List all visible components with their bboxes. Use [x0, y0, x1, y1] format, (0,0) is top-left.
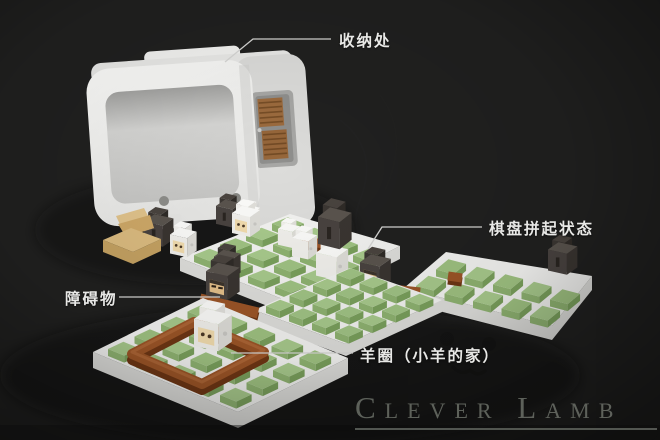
label-board-state: 棋盘拼起状态	[489, 217, 594, 239]
label-sheep-pen: 羊圈（小羊的家）	[360, 344, 500, 366]
label-storage: 收纳处	[339, 29, 392, 51]
product-diagram: 收纳处 棋盘拼起状态 障碍物 羊圈（小羊的家） Clever Lamb	[0, 0, 660, 440]
watermark-text: Clever Lamb	[355, 392, 657, 430]
box-opening	[105, 84, 241, 205]
label-obstacle: 障碍物	[65, 287, 118, 309]
obstacle-bar	[448, 276, 462, 282]
storage-box	[84, 41, 316, 240]
